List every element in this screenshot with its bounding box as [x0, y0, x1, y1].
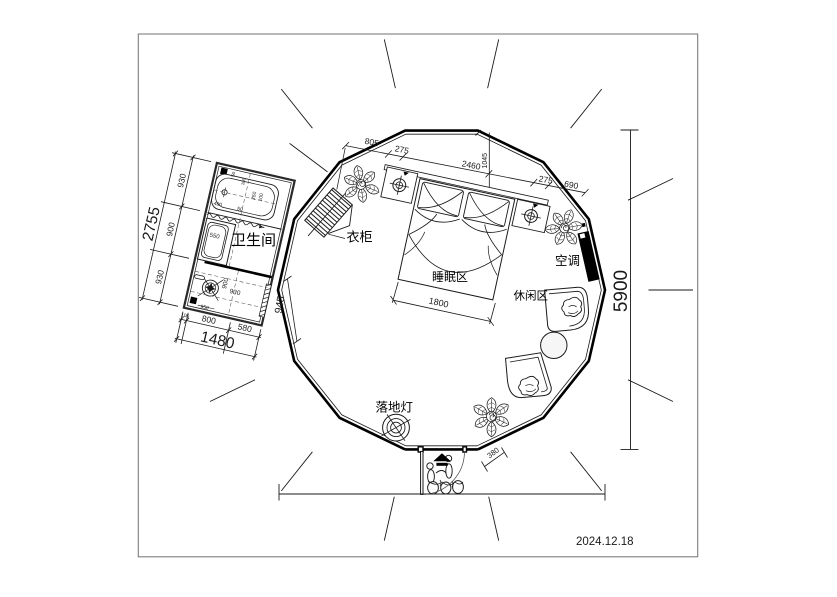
svg-text:衣柜: 衣柜	[347, 230, 373, 245]
svg-text:休闲区: 休闲区	[514, 289, 549, 303]
svg-text:2024.12.18: 2024.12.18	[576, 536, 634, 548]
svg-text:卫生间: 卫生间	[231, 232, 276, 249]
svg-text:空调: 空调	[555, 254, 580, 268]
svg-text:1045: 1045	[482, 153, 489, 169]
svg-text:落地灯: 落地灯	[376, 401, 414, 415]
svg-text:5900: 5900	[611, 270, 632, 312]
svg-text:睡眠区: 睡眠区	[432, 270, 468, 284]
